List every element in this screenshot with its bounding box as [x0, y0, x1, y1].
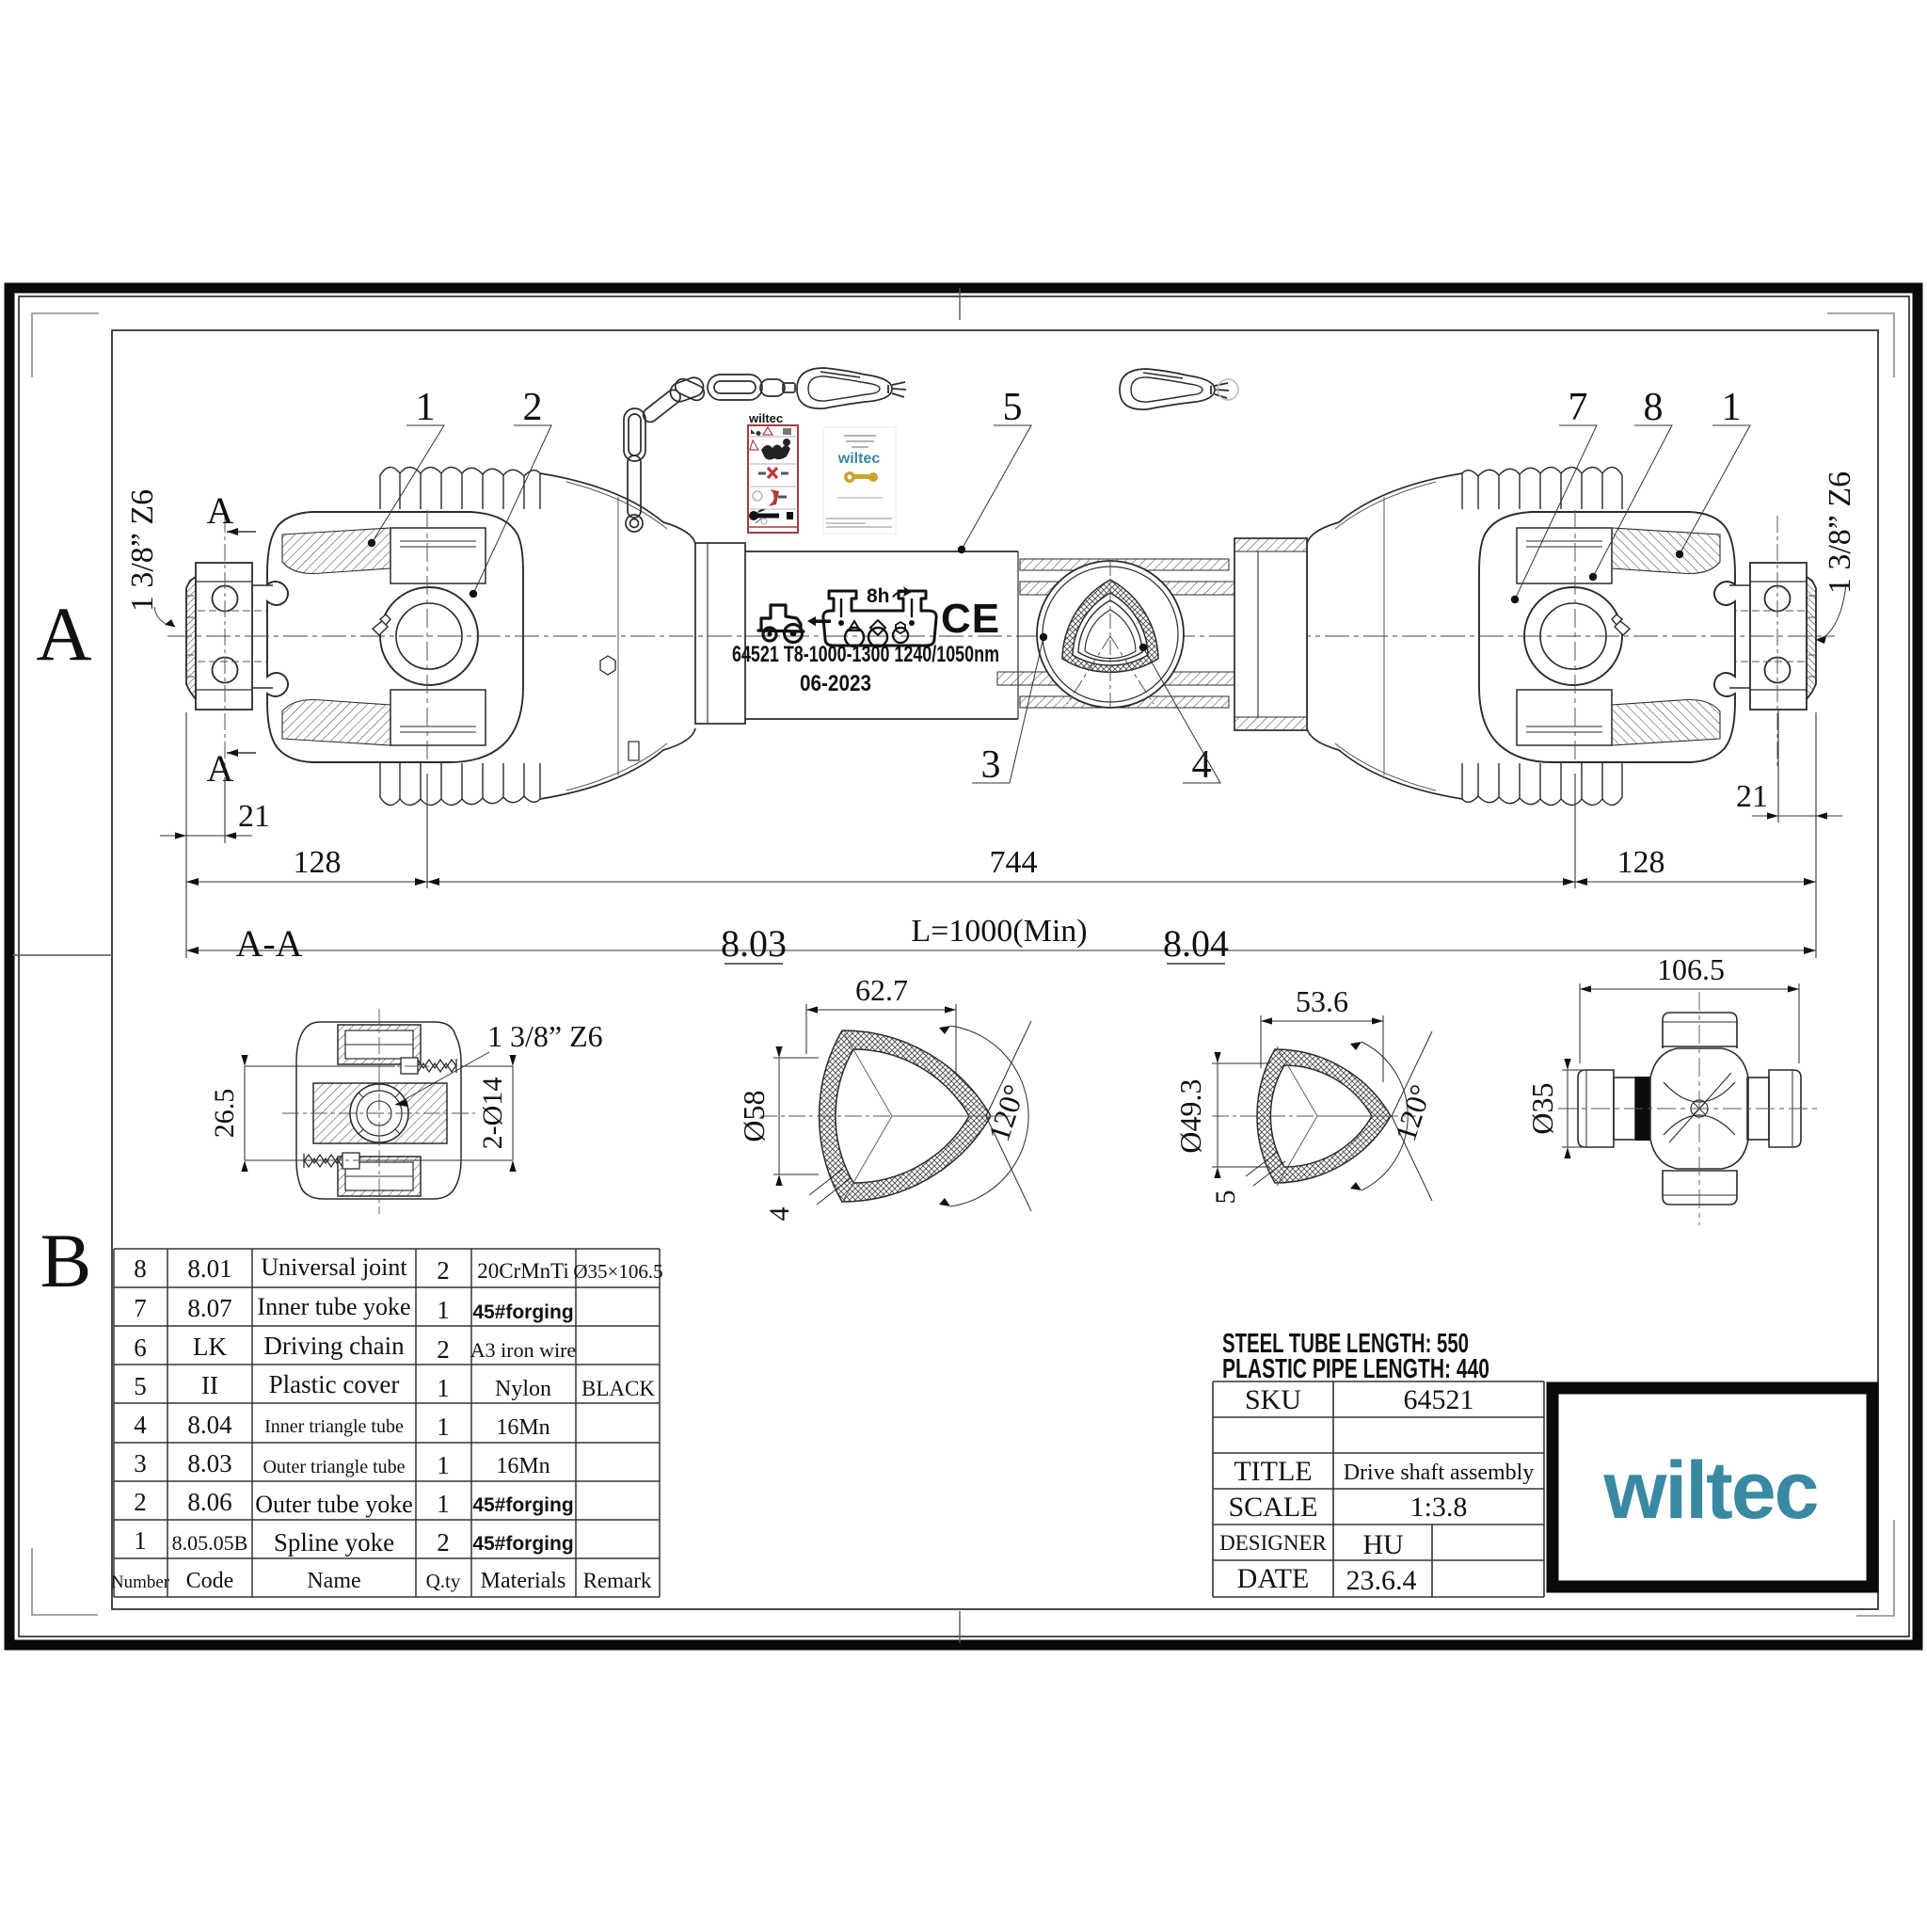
svg-text:wiltec: wiltec — [1603, 1445, 1818, 1536]
svg-text:1: 1 — [416, 386, 436, 429]
svg-text:8: 8 — [1644, 386, 1664, 429]
svg-text:53.6: 53.6 — [1296, 984, 1348, 1018]
svg-text:8.04: 8.04 — [187, 1411, 232, 1439]
svg-text:A-A: A-A — [235, 922, 302, 965]
svg-text:16Mn: 16Mn — [496, 1415, 549, 1440]
svg-text:wiltec: wiltec — [748, 411, 783, 425]
svg-text:4: 4 — [134, 1411, 147, 1439]
svg-text:1: 1 — [437, 1296, 450, 1324]
svg-text:Outer triangle tube: Outer triangle tube — [263, 1457, 405, 1477]
svg-text:1: 1 — [437, 1451, 450, 1479]
svg-text:8: 8 — [134, 1254, 147, 1283]
svg-text:B: B — [40, 1218, 92, 1303]
svg-text:7: 7 — [134, 1294, 147, 1322]
svg-text:Universal joint: Universal joint — [261, 1253, 407, 1281]
svg-text:1:3.8: 1:3.8 — [1410, 1492, 1468, 1523]
svg-text:Q.ty: Q.ty — [426, 1570, 461, 1592]
svg-text:2: 2 — [437, 1528, 450, 1557]
svg-text:45#forging: 45#forging — [472, 1301, 573, 1323]
svg-text:PLASTIC PIPE LENGTH: 440: PLASTIC PIPE LENGTH: 440 — [1222, 1354, 1489, 1384]
svg-text:DATE: DATE — [1237, 1563, 1310, 1594]
svg-text:3: 3 — [981, 743, 1001, 787]
svg-text:64521 T8-1000-1300 1240/1050nm: 64521 T8-1000-1300 1240/1050nm — [732, 642, 999, 667]
svg-text:Nylon: Nylon — [495, 1377, 551, 1401]
svg-text:6: 6 — [134, 1333, 147, 1362]
svg-text:Materials: Materials — [481, 1569, 566, 1593]
svg-text:II: II — [201, 1371, 218, 1399]
svg-text:Outer tube yoke: Outer tube yoke — [255, 1491, 413, 1518]
svg-text:2: 2 — [523, 386, 543, 429]
svg-text:21: 21 — [1736, 779, 1768, 814]
svg-text:BLACK: BLACK — [581, 1377, 655, 1400]
svg-text:2: 2 — [437, 1256, 450, 1285]
svg-text:1: 1 — [437, 1374, 450, 1402]
svg-text:8.07: 8.07 — [187, 1294, 231, 1322]
svg-text:1 3/8” Z6: 1 3/8” Z6 — [487, 1019, 603, 1053]
svg-text:26.5: 26.5 — [209, 1089, 240, 1139]
svg-text:16Mn: 16Mn — [496, 1454, 549, 1478]
svg-text:Inner tube yoke: Inner tube yoke — [257, 1293, 410, 1320]
svg-text:64521: 64521 — [1404, 1384, 1474, 1415]
svg-text:Drive shaft assembly: Drive shaft assembly — [1344, 1461, 1535, 1485]
svg-text:120°: 120° — [1388, 1080, 1438, 1145]
svg-text:A: A — [207, 489, 234, 532]
svg-text:5: 5 — [1210, 1190, 1241, 1205]
svg-text:06-2023: 06-2023 — [800, 671, 871, 696]
svg-text:21: 21 — [238, 799, 270, 834]
svg-text:8h: 8h — [867, 585, 890, 607]
svg-text:CE: CE — [941, 596, 1000, 642]
svg-text:8.05.05B: 8.05.05B — [172, 1531, 248, 1555]
svg-text:1: 1 — [134, 1526, 147, 1555]
svg-text:20CrMnTi: 20CrMnTi — [477, 1259, 569, 1283]
svg-text:Remark: Remark — [583, 1569, 652, 1592]
svg-text:45#forging: 45#forging — [472, 1494, 573, 1516]
svg-text:Ø35×106.5: Ø35×106.5 — [573, 1260, 662, 1283]
svg-text:LK: LK — [193, 1333, 227, 1361]
svg-text:106.5: 106.5 — [1657, 952, 1725, 986]
svg-text:8.01: 8.01 — [187, 1254, 231, 1283]
svg-text:L=1000(Min): L=1000(Min) — [911, 914, 1087, 949]
svg-text:45#forging: 45#forging — [472, 1533, 573, 1555]
svg-text:Ø49.3: Ø49.3 — [1173, 1078, 1207, 1153]
svg-text:Code: Code — [186, 1569, 234, 1593]
svg-text:3: 3 — [134, 1449, 147, 1477]
svg-text:1: 1 — [437, 1413, 450, 1441]
svg-text:wiltec: wiltec — [837, 451, 881, 467]
svg-text:1: 1 — [1722, 386, 1742, 429]
svg-text:SCALE: SCALE — [1228, 1492, 1317, 1523]
svg-text:8.03: 8.03 — [187, 1449, 231, 1477]
svg-text:1 3/8” Z6: 1 3/8” Z6 — [1823, 471, 1857, 594]
svg-text:SKU: SKU — [1245, 1384, 1301, 1415]
svg-text:HU: HU — [1362, 1529, 1404, 1560]
svg-text:Plastic cover: Plastic cover — [269, 1370, 400, 1398]
svg-text:A: A — [36, 591, 91, 677]
svg-text:23.6.4: 23.6.4 — [1346, 1565, 1417, 1596]
svg-text:2: 2 — [134, 1488, 147, 1516]
svg-text:Ø58: Ø58 — [737, 1090, 771, 1142]
svg-text:5: 5 — [134, 1372, 147, 1400]
svg-text:4: 4 — [764, 1207, 795, 1221]
svg-text:Number: Number — [111, 1573, 170, 1592]
svg-text:5: 5 — [1003, 386, 1023, 429]
svg-text:8.06: 8.06 — [187, 1488, 231, 1516]
svg-text:DESIGNER: DESIGNER — [1219, 1531, 1327, 1555]
svg-text:744: 744 — [990, 845, 1038, 880]
svg-text:2-Ø14: 2-Ø14 — [477, 1078, 508, 1150]
svg-text:TITLE: TITLE — [1234, 1456, 1312, 1487]
svg-text:Driving chain: Driving chain — [263, 1332, 405, 1360]
svg-text:8.03: 8.03 — [721, 922, 787, 965]
svg-text:2: 2 — [437, 1335, 450, 1364]
svg-text:128: 128 — [294, 845, 342, 880]
svg-text:Ø35: Ø35 — [1525, 1082, 1559, 1134]
svg-text:8.04: 8.04 — [1163, 922, 1229, 965]
svg-text:120°: 120° — [981, 1080, 1031, 1145]
svg-text:62.7: 62.7 — [855, 973, 908, 1007]
svg-text:1: 1 — [437, 1490, 450, 1518]
svg-text:A3 iron wire: A3 iron wire — [470, 1338, 576, 1362]
svg-text:128: 128 — [1617, 845, 1665, 880]
svg-text:1 3/8” Z6: 1 3/8” Z6 — [125, 489, 160, 612]
svg-text:7: 7 — [1569, 386, 1588, 429]
svg-text:Spline yoke: Spline yoke — [274, 1528, 394, 1557]
svg-text:Name: Name — [307, 1569, 360, 1593]
svg-text:Inner triangle tube: Inner triangle tube — [264, 1416, 404, 1437]
